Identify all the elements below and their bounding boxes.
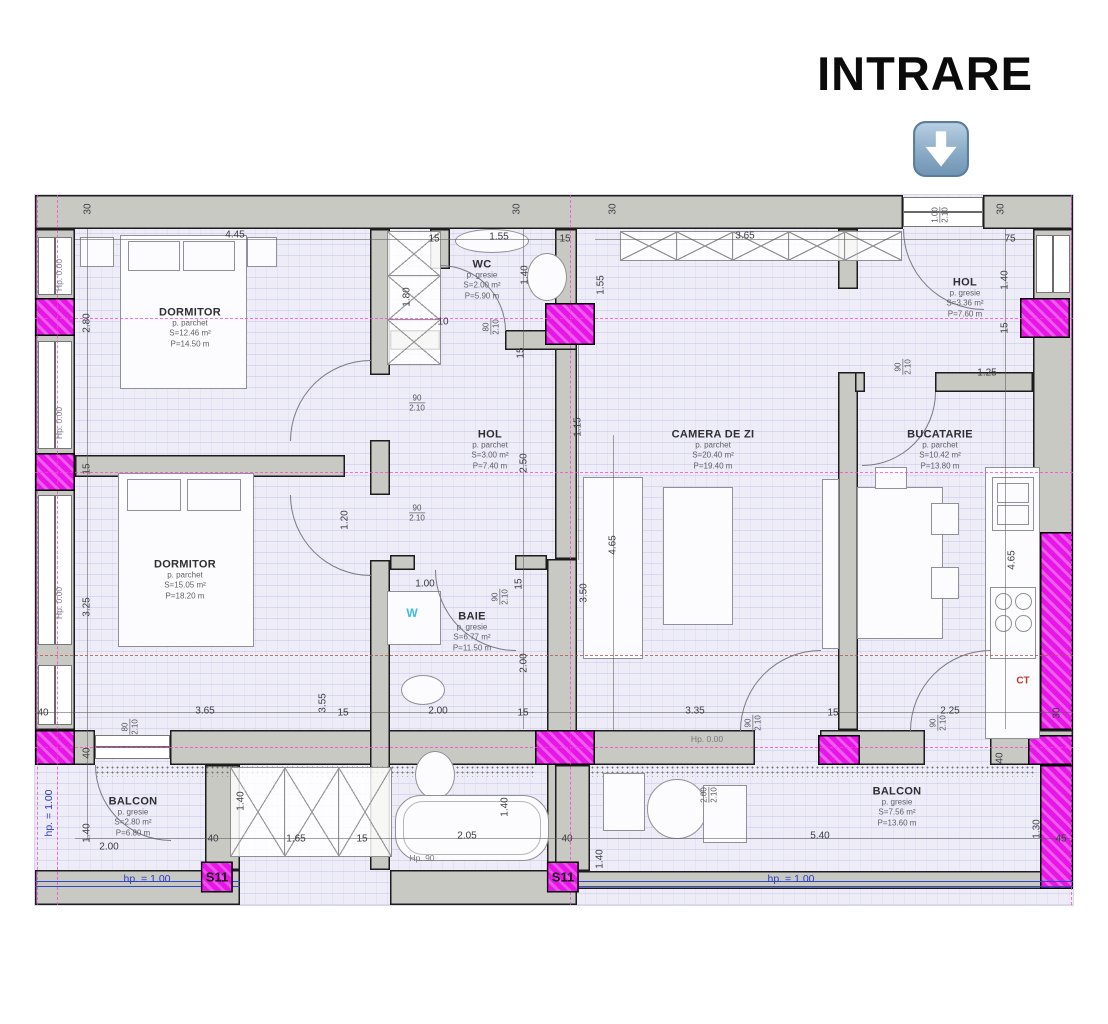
balcon-2-area: S=7.56 m² xyxy=(873,808,922,818)
dimension-line xyxy=(595,239,1035,240)
axis-line xyxy=(57,195,58,905)
furniture xyxy=(187,479,241,511)
wardrobe-cell xyxy=(338,767,392,857)
door-swing-arc xyxy=(290,495,371,576)
furniture xyxy=(822,479,839,649)
balcon-2-floor: p. gresie xyxy=(873,797,922,807)
balcon-2-name: BALCON xyxy=(873,785,922,797)
fixture xyxy=(455,229,529,253)
camera-de-zi-area: S=20.40 m² xyxy=(672,451,755,461)
axis-line xyxy=(570,195,571,905)
door-swing-arc xyxy=(740,650,821,731)
door-dimension: 902.10 xyxy=(409,393,425,412)
wardrobe-cell xyxy=(230,767,286,857)
dimension-label: 15 xyxy=(827,708,838,719)
masonry-pier xyxy=(818,735,860,765)
dimension-label: 5.40 xyxy=(810,831,829,842)
room-label-hol: HOLp. parchetS=3.00 m²P=7.40 m xyxy=(471,428,508,471)
dimension-label: 1.00 xyxy=(415,579,434,590)
wall xyxy=(855,372,865,392)
axis-line xyxy=(37,195,38,905)
furniture xyxy=(997,505,1029,525)
fixture xyxy=(1015,615,1032,632)
masonry-pier xyxy=(1040,532,1073,730)
door-swing-arc xyxy=(910,650,991,731)
furniture xyxy=(875,467,907,489)
furniture xyxy=(80,237,114,267)
fixture xyxy=(401,675,445,705)
furniture xyxy=(387,591,441,645)
hol-perimeter: P=7.40 m xyxy=(471,461,508,471)
window xyxy=(1036,235,1070,293)
window xyxy=(38,237,72,295)
camera-de-zi-name: CAMERA DE ZI xyxy=(672,428,755,440)
door-dimension: 902.10 xyxy=(893,359,912,375)
door-dimension: 902.10 xyxy=(409,503,425,522)
dimension-label: 3.35 xyxy=(685,706,704,717)
fixture xyxy=(703,785,747,843)
wall xyxy=(555,765,590,871)
dimension-line xyxy=(523,229,524,729)
wardrobe-cell xyxy=(676,231,734,261)
furniture xyxy=(128,241,180,271)
furniture xyxy=(663,487,733,625)
room-label-balcon-2: BALCONp. gresieS=7.56 m²P=13.60 m xyxy=(873,785,922,828)
wall xyxy=(370,440,390,495)
dimension-label: hp. = 1.00 xyxy=(43,790,55,837)
dimension-label: 1.55 xyxy=(596,275,607,294)
wardrobe-cell xyxy=(620,231,678,261)
dimension-label: 2.00 xyxy=(428,706,447,717)
entrance-heading: INTRARE xyxy=(817,46,1033,101)
bucatarie-area: S=10.42 m² xyxy=(907,451,973,461)
wardrobe-cell xyxy=(387,319,441,365)
balcon-2-perimeter: P=13.60 m xyxy=(873,818,922,828)
wc-name: WC xyxy=(463,258,500,270)
door-swing-arc xyxy=(903,229,984,310)
dimension-line xyxy=(35,712,1073,713)
fixture xyxy=(415,751,455,799)
dimension-line xyxy=(75,838,1073,839)
fixture xyxy=(527,253,567,301)
service-axis-line xyxy=(35,655,1073,656)
window xyxy=(903,197,983,227)
hol-floor: p. parchet xyxy=(471,440,508,450)
wall xyxy=(35,870,240,905)
fixture xyxy=(1015,593,1032,610)
dimension-label: 2.00 xyxy=(99,842,118,853)
fixture xyxy=(403,801,541,855)
fixture xyxy=(995,593,1012,610)
room-label-camera-de-zi: CAMERA DE ZIp. parchetS=20.40 m²P=19.40 … xyxy=(672,428,755,471)
wall xyxy=(35,195,903,229)
window xyxy=(38,495,72,645)
dimension-label: 3.55 xyxy=(318,693,329,712)
furniture xyxy=(997,483,1029,503)
wardrobe-cell xyxy=(844,231,902,261)
axis-line xyxy=(35,747,1073,748)
balcony-railing xyxy=(35,881,240,887)
camera-de-zi-floor: p. parchet xyxy=(672,440,755,450)
wall xyxy=(390,870,577,905)
dimension-line xyxy=(578,345,579,560)
fixture xyxy=(647,779,707,839)
furniture xyxy=(931,567,959,599)
door-swing-arc xyxy=(290,360,371,441)
dimension-label: 2.00 xyxy=(519,653,530,672)
door-swing-arc xyxy=(435,570,516,651)
camera-de-zi-perimeter: P=19.40 m xyxy=(672,461,755,471)
dimension-line xyxy=(1005,229,1006,729)
furniture xyxy=(931,503,959,535)
masonry-pier xyxy=(1040,765,1073,889)
wall xyxy=(935,372,1033,392)
hol-area: S=3.00 m² xyxy=(471,451,508,461)
wardrobe-cell xyxy=(732,231,790,261)
door-swing-arc xyxy=(95,765,171,841)
wall xyxy=(390,555,415,570)
door-swing-arc xyxy=(440,265,506,331)
masonry-pier xyxy=(35,298,75,336)
dimension-line xyxy=(613,435,614,730)
wall xyxy=(555,345,577,559)
dimension-label: 1.40 xyxy=(595,849,606,868)
dimension-line xyxy=(75,239,565,240)
window xyxy=(38,341,72,449)
wall xyxy=(838,372,858,730)
wall xyxy=(983,195,1073,229)
insulation-hatch xyxy=(590,765,1035,777)
hol-name: HOL xyxy=(471,428,508,440)
fixture xyxy=(995,615,1012,632)
floor-plan: DORMITORp. parchetS=12.46 m²P=14.50 mWCp… xyxy=(35,195,1073,905)
door-swing-arc xyxy=(862,392,936,466)
furniture xyxy=(127,479,181,511)
furniture xyxy=(247,237,277,267)
wardrobe-cell xyxy=(788,231,846,261)
wardrobe-cell xyxy=(387,231,441,277)
balcony-railing xyxy=(555,881,1073,887)
axis-line xyxy=(35,472,1073,473)
axis-line xyxy=(35,318,1073,319)
bucatarie-perimeter: P=13.80 m xyxy=(907,461,973,471)
bucatarie-floor: p. parchet xyxy=(907,440,973,450)
dimension-label: 3.65 xyxy=(195,706,214,717)
window xyxy=(38,665,72,725)
axis-line xyxy=(1071,195,1072,905)
furniture xyxy=(183,241,235,271)
door-dimension: 802.10 xyxy=(120,719,139,735)
wardrobe-cell xyxy=(387,275,441,321)
dimension-label: 15 xyxy=(337,708,348,719)
wardrobe-cell xyxy=(284,767,340,857)
masonry-pier xyxy=(1028,735,1073,765)
down-arrow-icon xyxy=(912,120,970,178)
fixture xyxy=(603,773,645,831)
page: { "entrance": { "heading": "INTRARE", "i… xyxy=(0,0,1108,1024)
dimension-label: 2.50 xyxy=(519,453,530,472)
wall xyxy=(515,555,547,570)
